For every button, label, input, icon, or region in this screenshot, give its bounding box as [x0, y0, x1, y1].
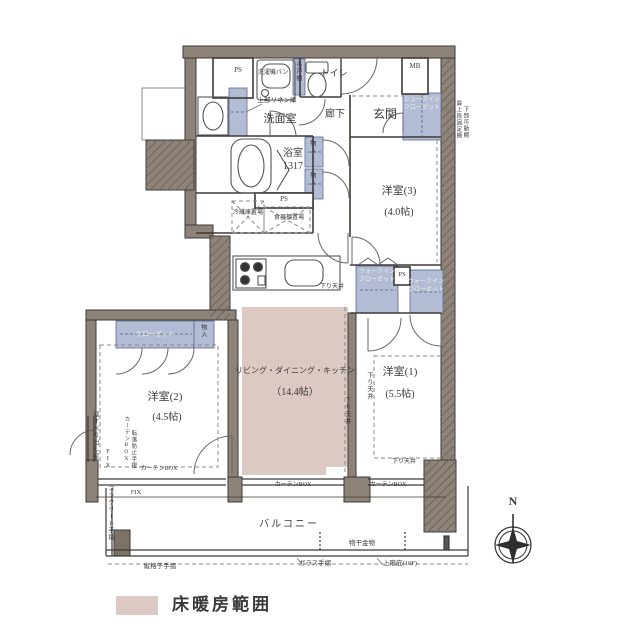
bedroom2-label: 洋室(2): [148, 391, 183, 404]
fix-note-1: FIX: [104, 449, 111, 470]
lowered-ceiling-b1-bottom: 下り天井: [392, 459, 416, 466]
ldk-size-label: （14.4帖）: [271, 387, 319, 399]
bath-label: 浴室: [283, 148, 303, 160]
ps-label-wic: PS: [398, 271, 405, 278]
fall-rail-note: 転落防止手摺: [130, 430, 136, 469]
closet-label: クローゼット: [136, 331, 175, 338]
wic-right-line2: クローゼット: [408, 287, 444, 294]
exterior-notch: [142, 88, 186, 140]
balcony-label: バルコニー: [259, 519, 319, 531]
lowered-ceiling-kitchen: 下り天井: [320, 284, 344, 291]
floor-plan: PS 洗濯機パン トイレ 吊戸棚 上部リネン庫 洗面室 廊下 玄関 MB シュー…: [0, 0, 640, 640]
ps-label-top: PS: [234, 66, 242, 74]
laundry-fitting-note: 物干金物: [349, 540, 375, 547]
lowered-ceiling-b1-left: 下り天井: [365, 372, 372, 400]
glass-rail-note: ガラス手摺: [299, 560, 331, 567]
curtain-box-ldk: カーテンBOX: [275, 482, 312, 489]
lattice-rail-note: 縦格子手摺: [144, 563, 177, 570]
bedroom3-label: 洋室(3): [382, 185, 417, 198]
hallway-label: 廊下: [325, 109, 345, 121]
sic-label-line1: シューズイン: [404, 97, 440, 104]
washer-pan-label: 洗濯機パン: [258, 70, 288, 77]
legend-floor-heating-swatch: [116, 596, 158, 615]
sic-label-line2: クローゼット: [404, 105, 440, 112]
fridge-label: 冷蔵庫置場: [233, 210, 263, 217]
compass-rose: [495, 514, 531, 563]
storage-label-2: 物入: [308, 172, 315, 186]
legend-floor-heating-label: 床暖房範囲: [172, 595, 272, 615]
storage-label-3: 物入: [199, 324, 206, 338]
upper-floor-note: 上階庇(10F): [383, 560, 417, 567]
lowered-ceiling-ldk: 下り天井: [343, 397, 350, 425]
cupboard-label: 食器棚置場: [274, 215, 304, 222]
concrete-rail-note: コンクリート手摺: [106, 485, 113, 541]
bedroom1-label: 洋室(1): [383, 366, 418, 379]
hanging-cabinet-label: 吊戸棚: [294, 61, 301, 82]
shelf-note-1: 最上段固定棚: [455, 100, 461, 139]
wic-left-line2: クローゼット: [359, 277, 395, 284]
curtain-box-b2-vertical: カーテンBOX: [123, 416, 129, 463]
entrance-label: 玄関: [373, 108, 397, 122]
ps-label-mid: PS: [280, 195, 288, 203]
toilet-label: トイレ: [320, 68, 347, 78]
wic-left-line1: ウォークイン: [359, 269, 395, 276]
curtain-box-b1: カーテンBOX: [370, 482, 407, 489]
bedroom3-size-label: (4.0帖): [384, 207, 413, 219]
fix-note-2: FIX: [131, 489, 141, 496]
floorplan-drawing: [0, 0, 640, 640]
bedroom1-size-label: (5.5帖): [385, 389, 414, 401]
ldk-label: リビング・ダイニング・キッチン: [235, 366, 355, 375]
wic-right-line1: ウォークイン: [408, 279, 444, 286]
bath-size-label: 1317: [283, 161, 303, 173]
washroom-label: 洗面室: [264, 113, 297, 126]
bedroom2-size-label: (4.5帖): [152, 412, 181, 424]
mb-label: MB: [410, 62, 421, 70]
curtain-box-b2: カーテンBOX: [141, 466, 178, 473]
casement-window-note: 縦すべり出し窓: [91, 411, 98, 460]
storage-label-1: 物入: [308, 140, 315, 154]
shelf-note-2: 下部可動棚: [462, 106, 468, 139]
compass-north-label: N: [509, 495, 518, 509]
linen-note-label: 上部リネン庫: [258, 97, 297, 104]
